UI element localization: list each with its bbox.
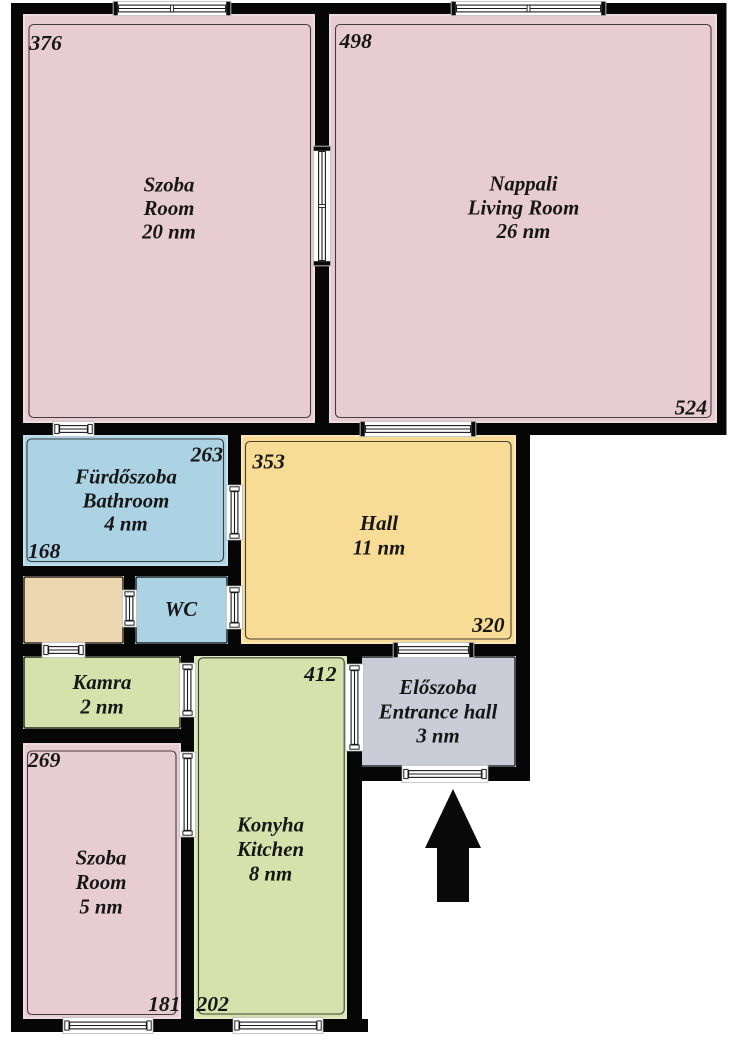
svg-text:20 nm: 20 nm [141,221,196,244]
svg-text:524: 524 [675,396,708,420]
svg-text:263: 263 [190,443,224,467]
svg-text:Living Room: Living Room [467,197,580,220]
svg-text:353: 353 [252,450,286,474]
svg-text:181: 181 [148,992,180,1016]
svg-text:8 nm: 8 nm [249,863,292,886]
svg-text:202: 202 [196,992,230,1016]
svg-text:Szoba: Szoba [76,847,127,870]
svg-text:Bathroom: Bathroom [82,490,170,513]
svg-text:Hall: Hall [359,512,398,535]
svg-text:Kamra: Kamra [72,671,132,694]
svg-text:Room: Room [75,871,127,894]
svg-text:Konyha: Konyha [236,814,304,837]
svg-text:WC: WC [165,598,198,621]
svg-text:5 nm: 5 nm [79,896,122,919]
svg-text:Room: Room [143,197,195,220]
svg-text:498: 498 [339,29,373,53]
svg-text:4 nm: 4 nm [103,513,147,536]
svg-text:376: 376 [29,31,63,55]
svg-text:3 nm: 3 nm [415,725,459,748]
svg-text:Fürdőszoba: Fürdőszoba [74,466,177,489]
svg-text:Entrance hall: Entrance hall [378,701,498,724]
svg-text:Kitchen: Kitchen [236,838,304,861]
svg-text:Szoba: Szoba [144,174,195,197]
svg-text:412: 412 [303,662,337,686]
svg-text:269: 269 [27,748,61,772]
svg-text:11 nm: 11 nm [353,537,406,560]
svg-text:168: 168 [28,539,61,563]
svg-text:Előszoba: Előszoba [398,676,476,699]
svg-text:Nappali: Nappali [488,173,557,196]
svg-text:2 nm: 2 nm [79,696,123,719]
svg-text:320: 320 [471,613,505,637]
svg-text:26 nm: 26 nm [496,220,551,243]
